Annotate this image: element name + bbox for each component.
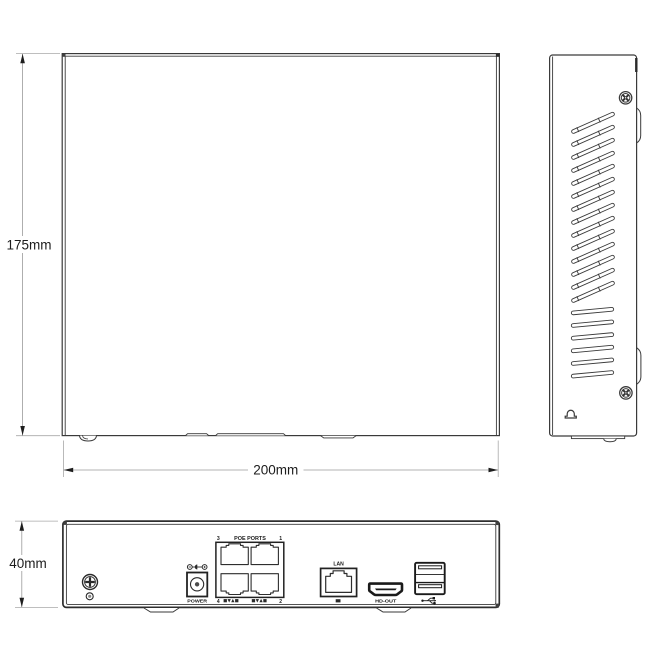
svg-text:175mm: 175mm bbox=[6, 238, 51, 253]
svg-text:40mm: 40mm bbox=[9, 556, 47, 571]
svg-text:2: 2 bbox=[279, 599, 282, 605]
svg-text:LAN: LAN bbox=[333, 561, 344, 567]
svg-text:1: 1 bbox=[279, 536, 282, 542]
svg-text:HD-OUT: HD-OUT bbox=[375, 599, 396, 605]
svg-text:200mm: 200mm bbox=[253, 463, 298, 478]
svg-text:4: 4 bbox=[217, 599, 220, 605]
svg-text:POE PORTS: POE PORTS bbox=[234, 536, 266, 542]
svg-text:POWER: POWER bbox=[187, 599, 207, 605]
svg-text:3: 3 bbox=[217, 536, 220, 542]
